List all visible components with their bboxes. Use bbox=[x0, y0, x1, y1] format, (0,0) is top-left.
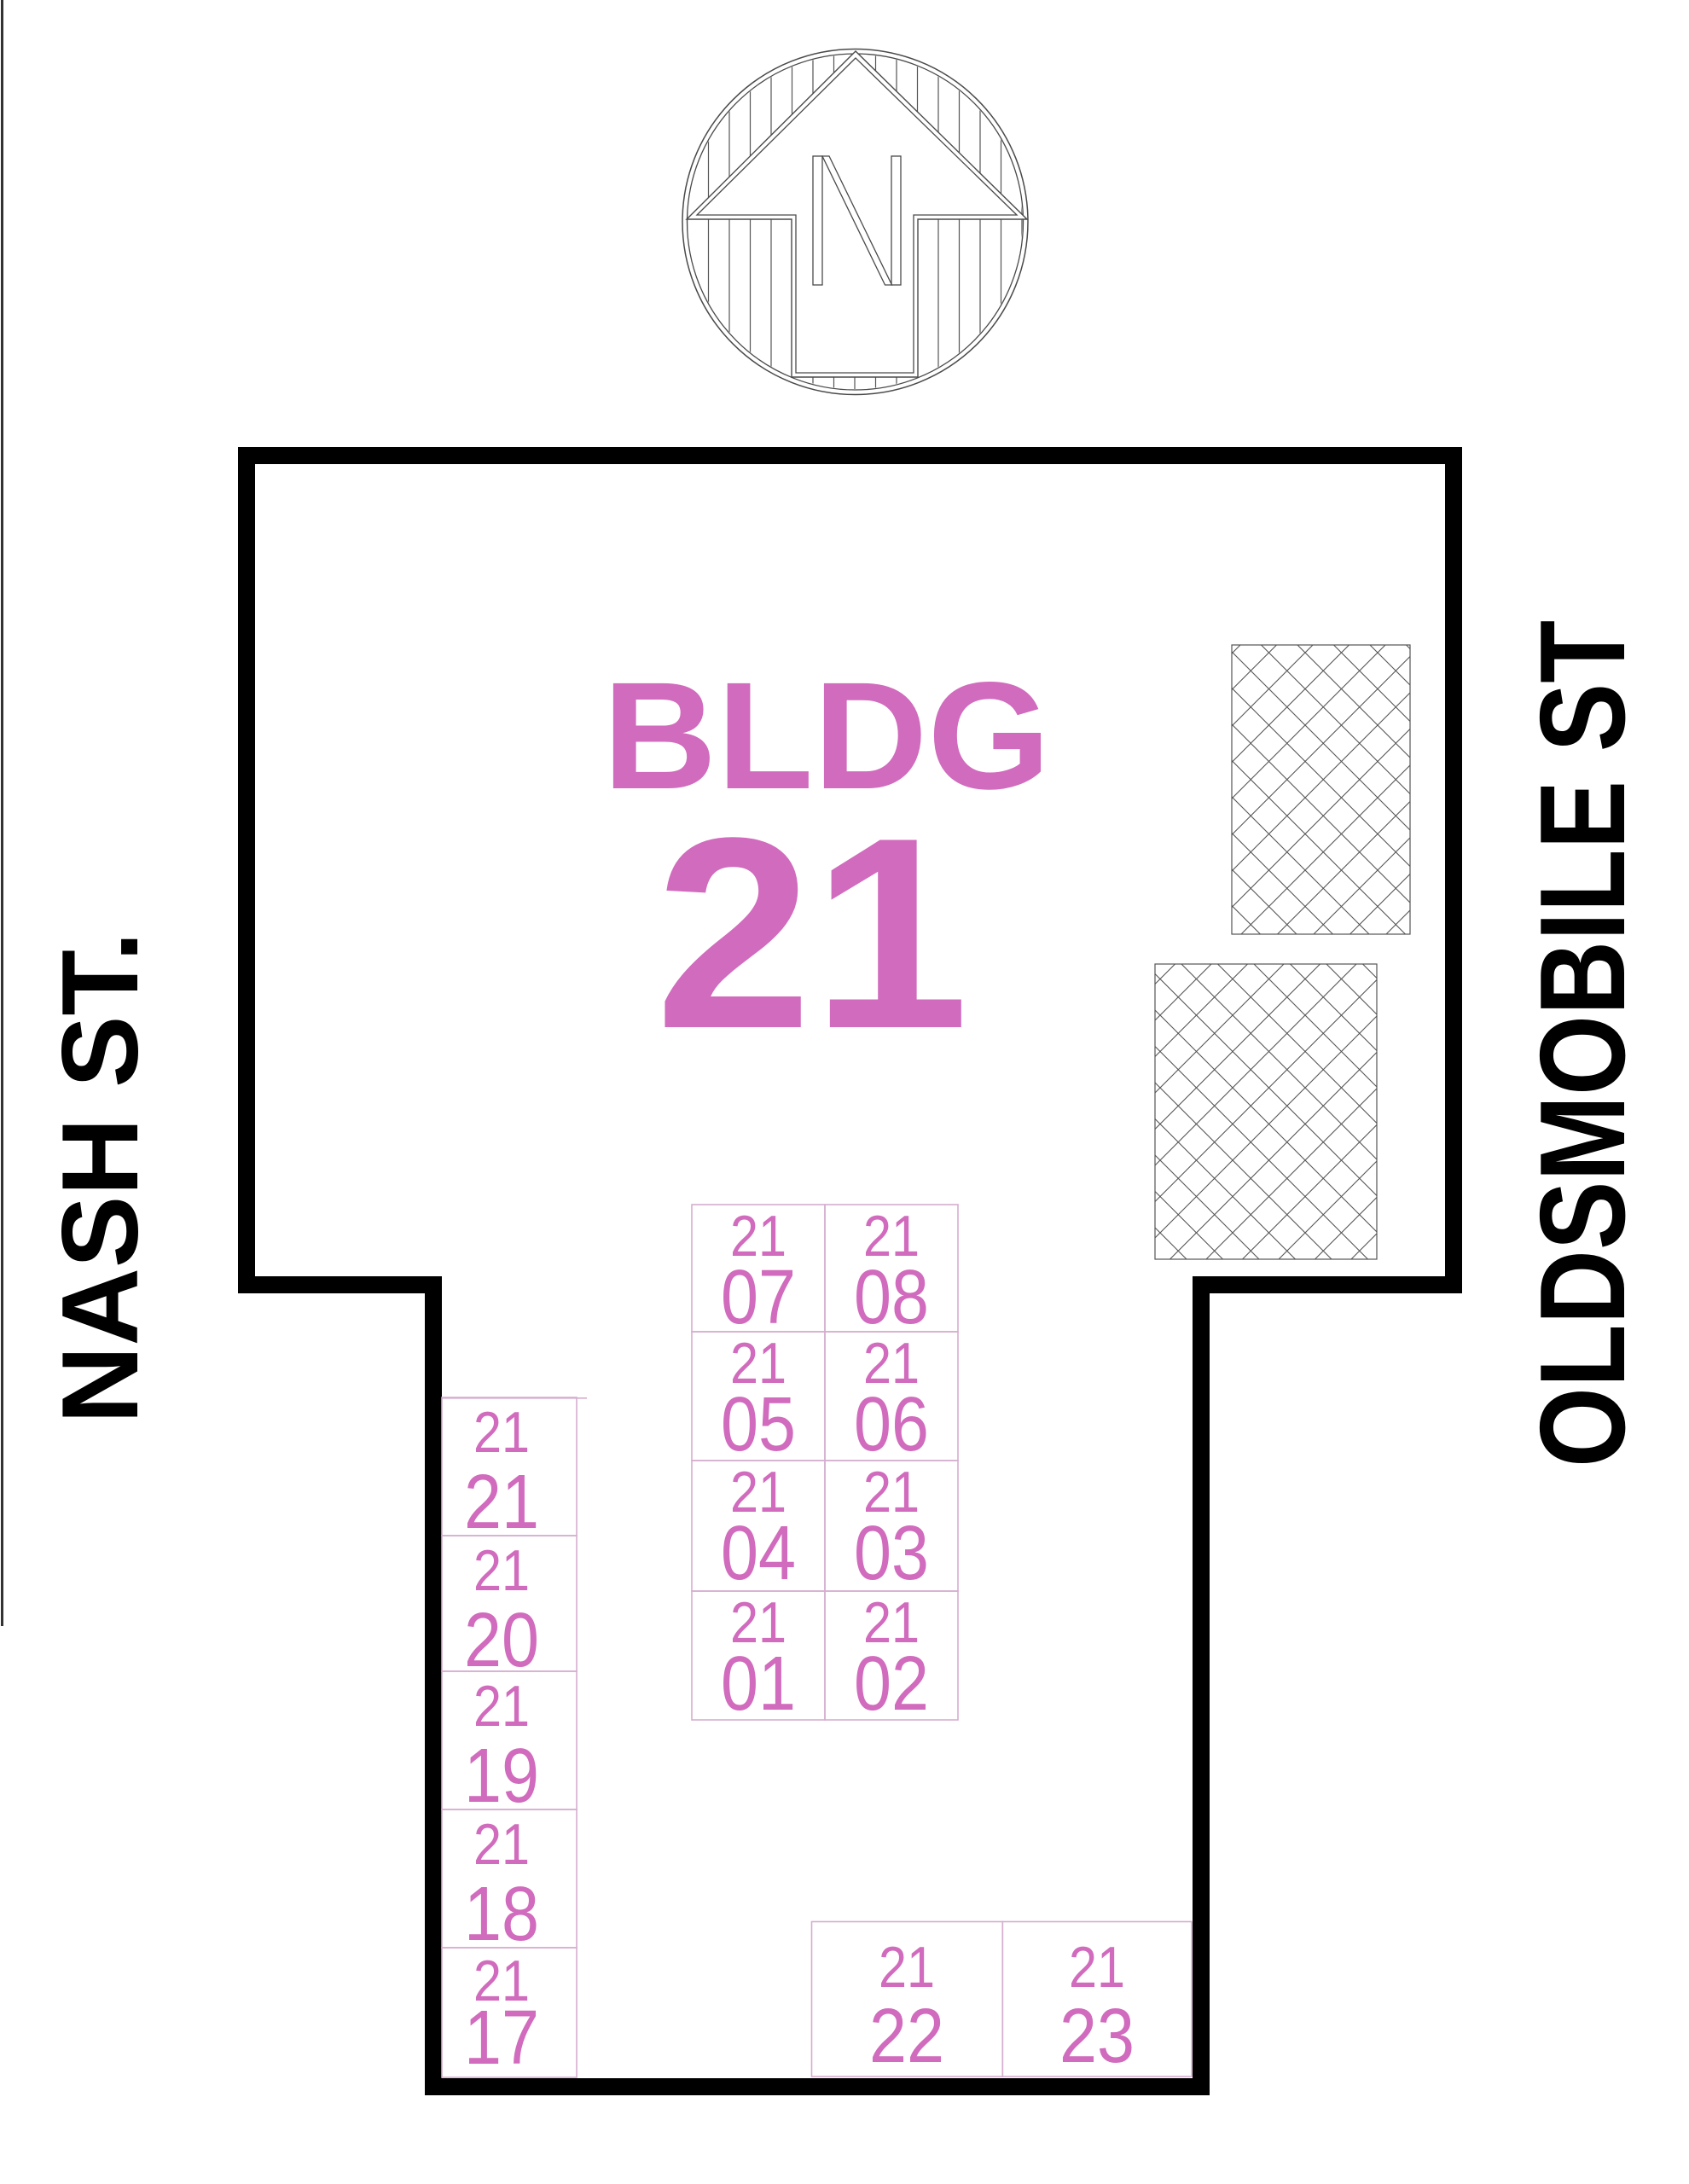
svg-text:17: 17 bbox=[464, 1995, 539, 2081]
svg-text:06: 06 bbox=[854, 1382, 929, 1467]
svg-text:18: 18 bbox=[464, 1872, 539, 1957]
svg-text:05: 05 bbox=[721, 1382, 796, 1467]
svg-text:21: 21 bbox=[1069, 1935, 1125, 2000]
svg-text:20: 20 bbox=[464, 1598, 539, 1683]
svg-text:03: 03 bbox=[854, 1511, 929, 1596]
svg-text:23: 23 bbox=[1059, 1994, 1135, 2079]
svg-text:21: 21 bbox=[655, 781, 969, 1085]
svg-text:22: 22 bbox=[869, 1994, 944, 2079]
svg-text:02: 02 bbox=[854, 1641, 929, 1727]
svg-text:21: 21 bbox=[473, 1400, 530, 1465]
svg-text:01: 01 bbox=[721, 1641, 796, 1727]
svg-text:21: 21 bbox=[464, 1460, 539, 1545]
svg-text:04: 04 bbox=[721, 1511, 796, 1596]
svg-text:21: 21 bbox=[473, 1538, 530, 1603]
svg-text:21: 21 bbox=[879, 1935, 935, 2000]
svg-text:07: 07 bbox=[721, 1255, 796, 1340]
svg-text:OLDSMOBILE ST: OLDSMOBILE ST bbox=[1515, 620, 1651, 1467]
svg-text:21: 21 bbox=[473, 1812, 530, 1877]
svg-text:08: 08 bbox=[854, 1255, 929, 1340]
svg-text:NASH ST.: NASH ST. bbox=[39, 932, 160, 1424]
svg-text:21: 21 bbox=[473, 1674, 530, 1739]
svg-text:19: 19 bbox=[464, 1734, 539, 1819]
